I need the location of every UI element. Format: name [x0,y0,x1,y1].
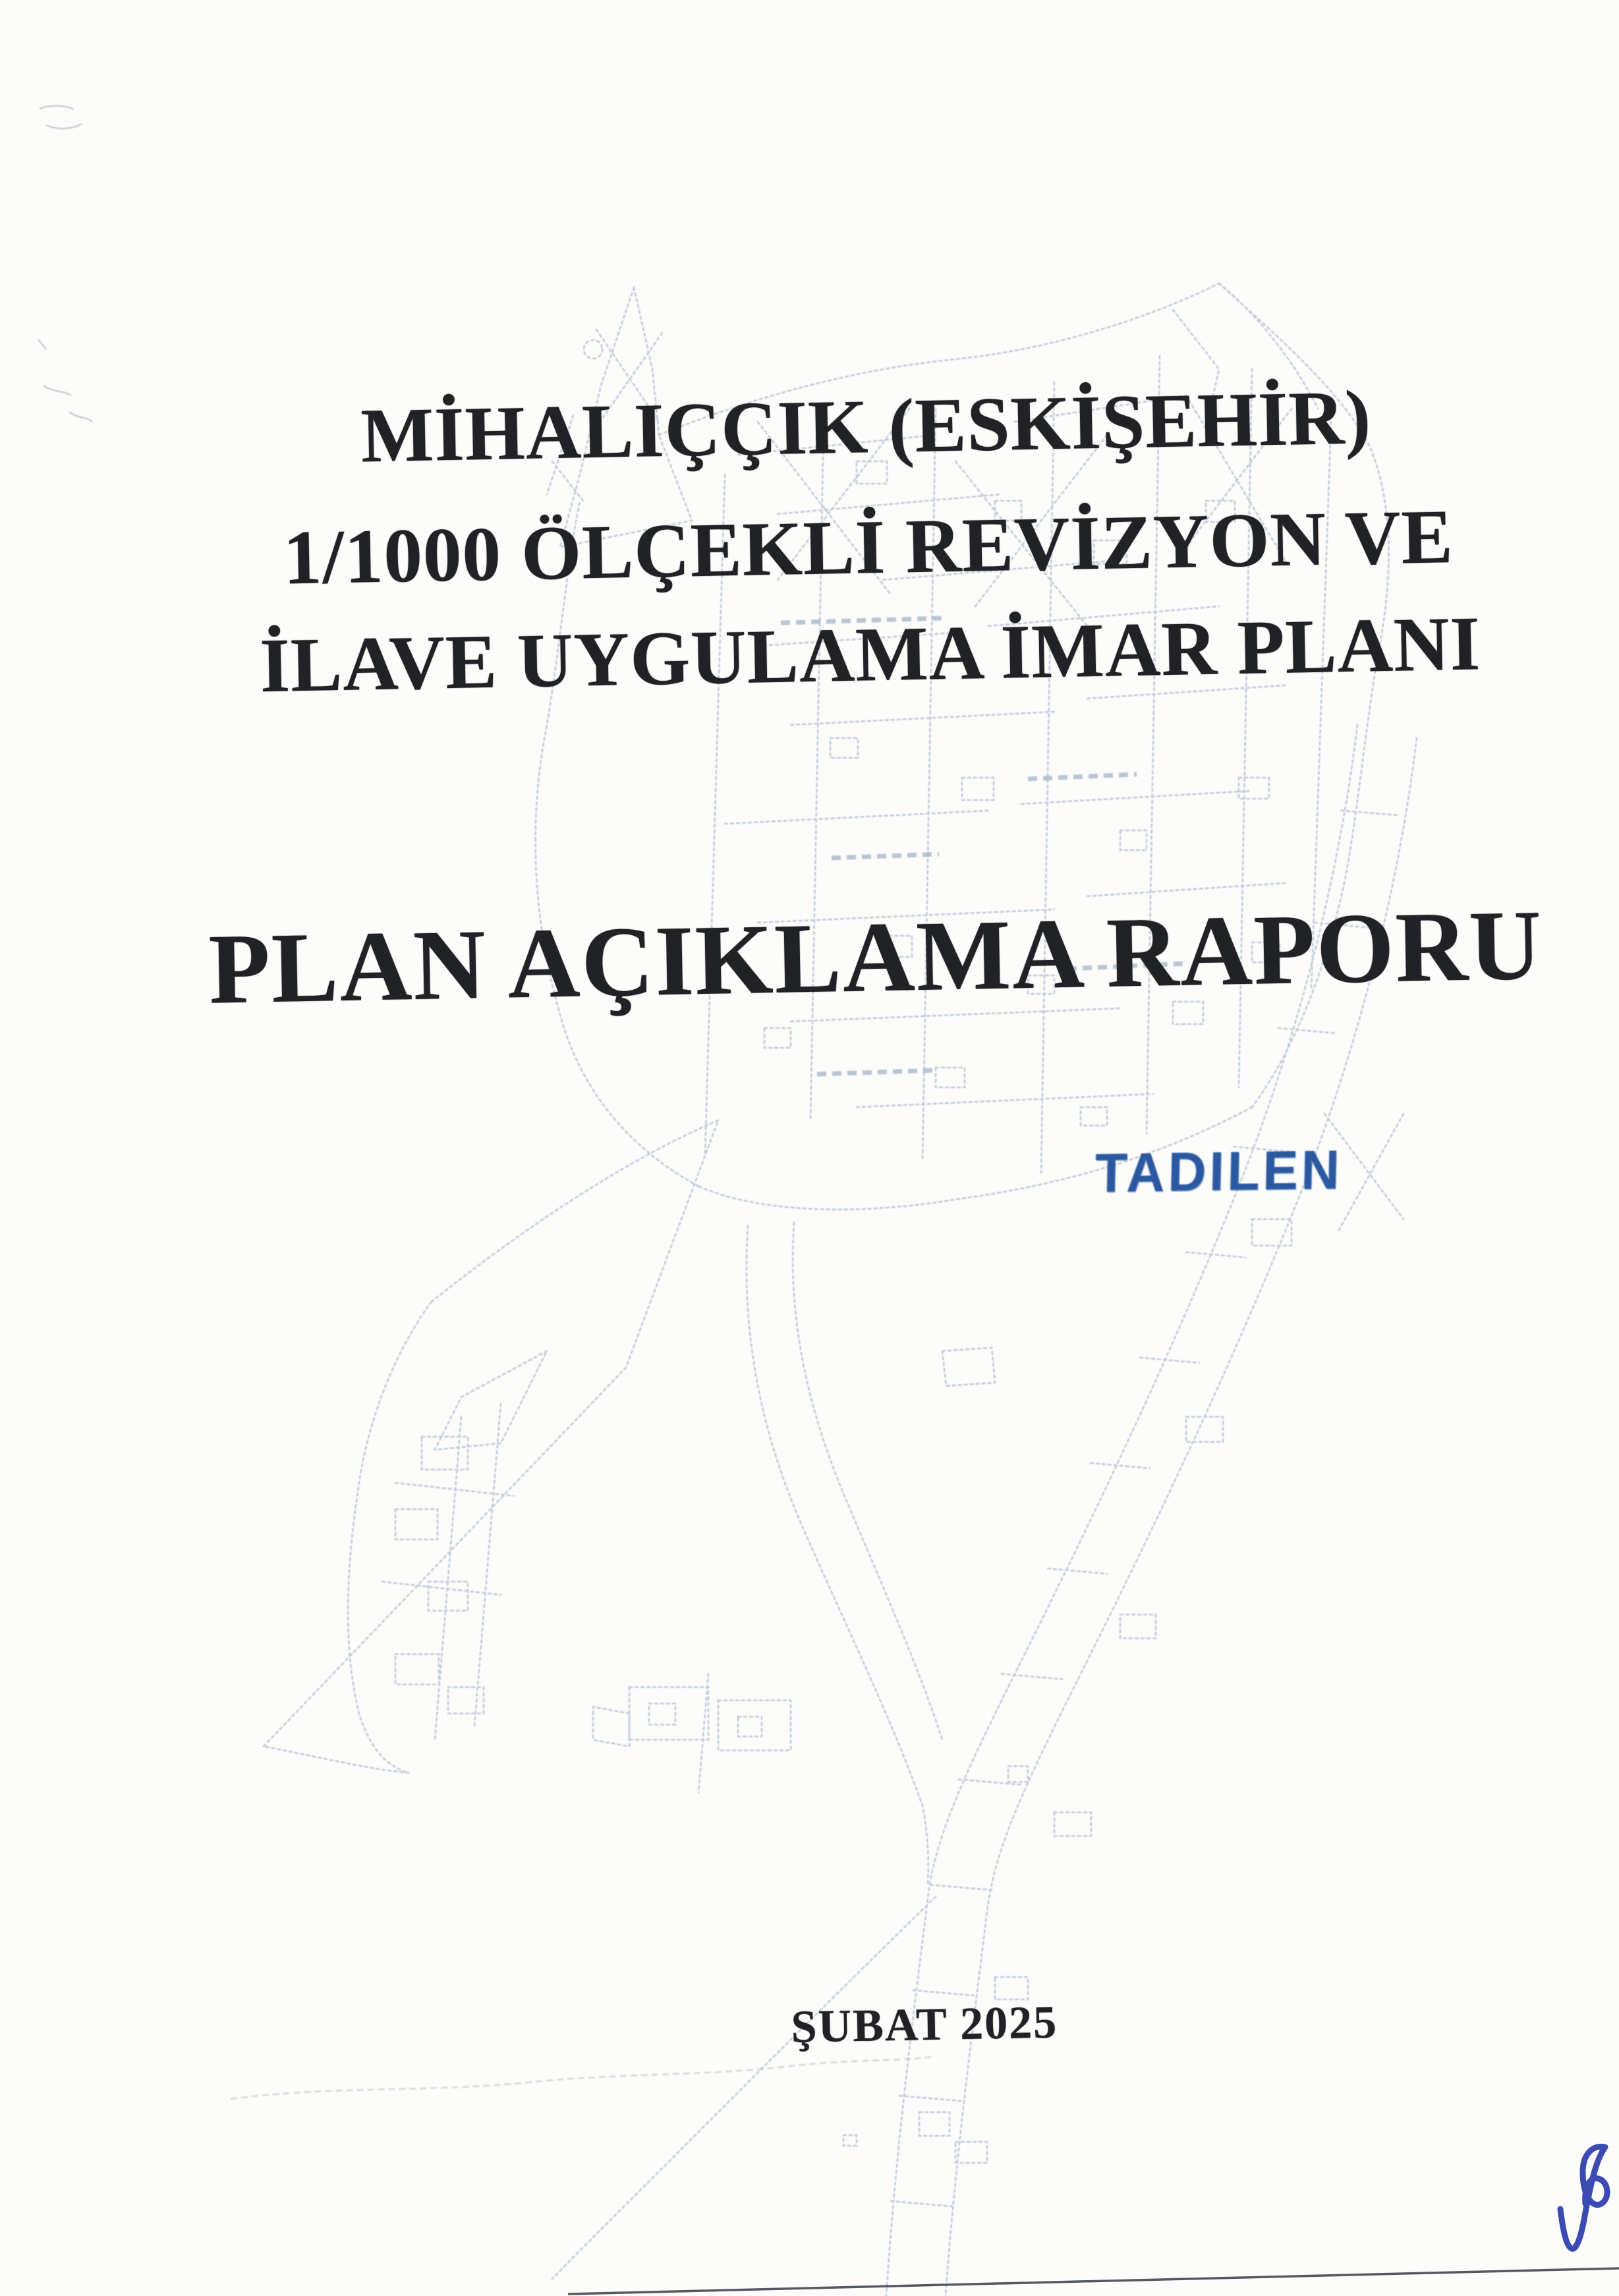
scanned-cover-page: MİHALIÇÇIK (ESKİŞEHİR) 1/1000 ÖLÇEKLİ RE… [0,0,1619,2296]
signature-mark [0,0,1619,2296]
